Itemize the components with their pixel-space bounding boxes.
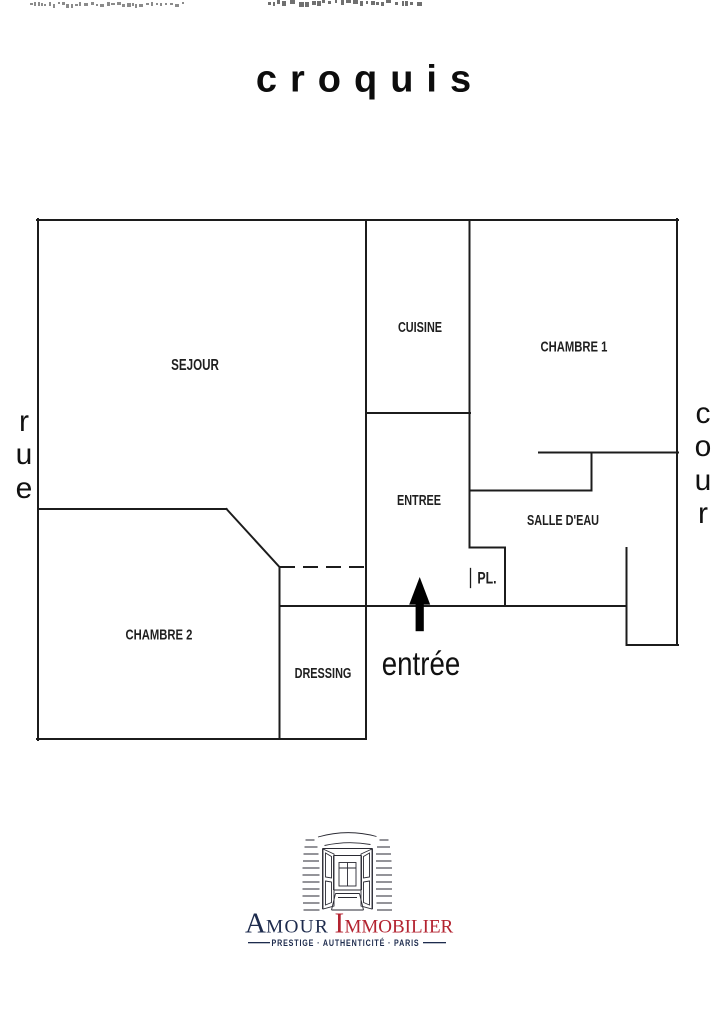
svg-text:A: A [245, 908, 266, 940]
svg-text:I: I [335, 908, 345, 940]
svg-text:MOUR: MOUR [266, 917, 329, 938]
svg-text:MMOBILIER: MMOBILIER [345, 917, 454, 938]
svg-text:PRESTIGE · AUTHENTICITÉ · PARI: PRESTIGE · AUTHENTICITÉ · PARIS [272, 937, 420, 948]
